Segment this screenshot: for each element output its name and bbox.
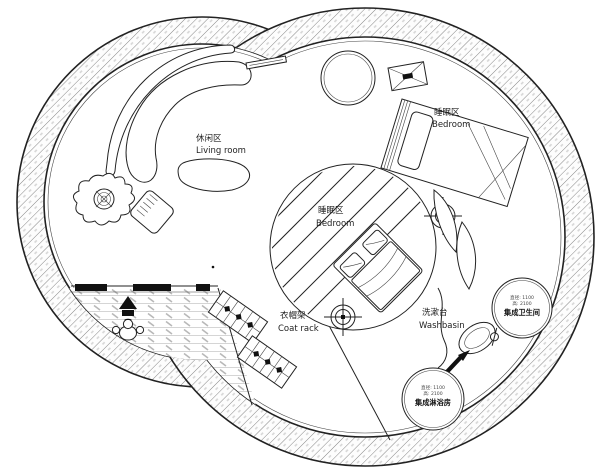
zone-partition-line (325, 318, 390, 440)
armchair (129, 189, 176, 235)
coffee-table (178, 159, 249, 191)
coat-rack-label-zh: 衣帽架 (280, 310, 306, 321)
shower-dim1: 直径: 1100 (421, 384, 445, 391)
bathroom-dim2: 高: 2100 (512, 300, 531, 307)
shower-dim2: 高: 2100 (423, 390, 442, 397)
shower-label: 集成淋浴房 (414, 398, 451, 407)
bathroom-label: 集成卫生间 (503, 308, 540, 317)
reference-dot (212, 266, 215, 269)
bedroom-upper-label-zh: 睡眠区 (434, 108, 460, 118)
bathroom-pod: 直径: 1100 高: 2100 集成卫生间 (492, 278, 552, 338)
living-room-label-en: Living room (196, 146, 246, 156)
bathroom-dim1: 直径: 1100 (510, 294, 534, 301)
side-table-x (388, 62, 427, 91)
washbasin-label-zh: 洗漱台 (422, 307, 448, 318)
washbasin-label-en: Washbasin (419, 321, 465, 331)
bedroom-center-label-en: Bedroom (316, 219, 354, 229)
round-table (321, 51, 375, 105)
bedroom-upper-label-en: Bedroom (432, 120, 470, 130)
living-room-label-zh: 休闲区 (196, 133, 222, 144)
plant-icon (73, 173, 134, 225)
shower-pod: 直径: 1100 高: 2100 集成淋浴房 (402, 368, 464, 430)
floor-plan-canvas: 直径: 1100 高: 2100 集成卫生间 直径: 1100 高: 2100 … (0, 0, 611, 473)
floor-plan: 直径: 1100 高: 2100 集成卫生间 直径: 1100 高: 2100 … (0, 0, 611, 473)
bedroom-center-label-zh: 睡眠区 (318, 206, 344, 216)
coat-rack-label-en: Coat rack (278, 324, 319, 334)
